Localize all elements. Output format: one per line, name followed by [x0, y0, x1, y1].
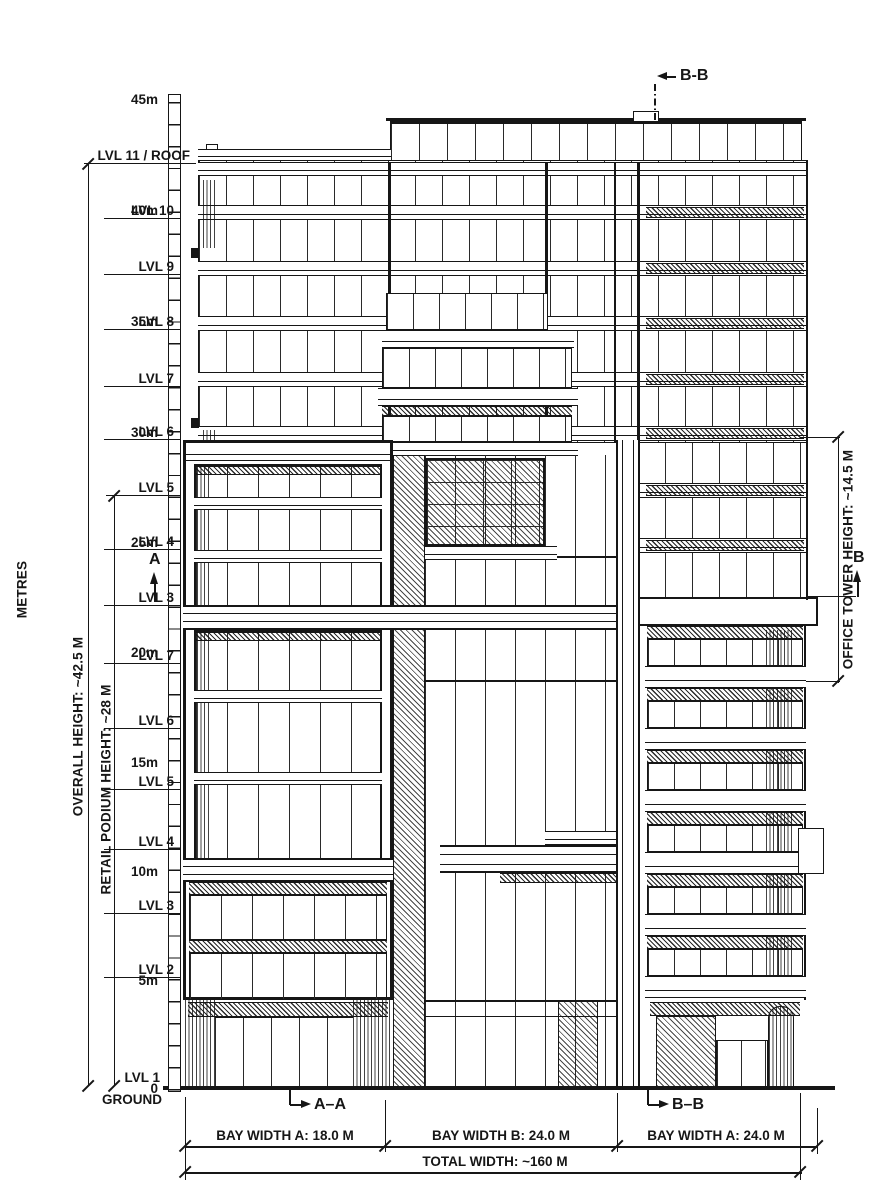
ground-line: [163, 1086, 835, 1090]
facade-hatch-lintel: [646, 428, 804, 439]
facade-centre-window-row: [382, 416, 572, 442]
facade-hatch-lintel: [196, 466, 380, 475]
bay-width-label: BAY WIDTH B: 24.0 M: [391, 1128, 611, 1143]
facade-hatched-core: [393, 455, 425, 1088]
section-arrow-right-icon: [659, 1100, 669, 1108]
section-arrow-stem: [857, 582, 859, 597]
facade-centre-band: [380, 442, 578, 456]
overall-height-label: OVERALL HEIGHT: ~42.5 M: [71, 617, 86, 837]
facade-storefront-hatched-panel: [656, 1016, 716, 1087]
facade-centre-window-row: [382, 348, 572, 388]
facade-spandrel: [645, 852, 806, 874]
facade-atrium-grid-h: [427, 460, 543, 544]
total-width-dim-line: [185, 1172, 802, 1174]
facade-left-parapet: [198, 149, 391, 161]
section-arrow-stem: [666, 76, 676, 78]
section-arrow-stem: [154, 584, 156, 602]
facade-right-cornice: [638, 597, 818, 626]
facade-centre-window-row: [386, 293, 548, 330]
bay-width-dim-line: [185, 1146, 817, 1148]
level-label: LVL 3: [104, 588, 180, 606]
facade-hatch-lintel: [646, 540, 804, 551]
facade-storefront-column: [185, 1000, 215, 1087]
facade-atrium-hatch-panel: [425, 458, 545, 546]
facade-centre-step-band: [545, 831, 617, 845]
section-arrow-up-icon: [150, 572, 158, 584]
level-label: LVL 7: [104, 369, 180, 387]
facade-left-podium-glazing: [194, 464, 382, 607]
level-label: LVL 8: [104, 312, 180, 330]
facade-column-louvre: [197, 467, 209, 605]
level-label: LVL 10: [104, 201, 180, 219]
section-arrow-stem: [290, 1104, 301, 1106]
facade-hatch-lintel: [647, 626, 803, 639]
facade-spandrel: [645, 790, 806, 812]
facade-right-edge-line: [806, 160, 808, 600]
level-label: LVL 4: [104, 832, 180, 850]
facade-atrium-sill-band: [425, 546, 557, 560]
facade-heavy-mullion: [637, 162, 640, 443]
section-arrow-right-icon: [301, 1100, 311, 1108]
scale-unit-label: METRES: [15, 538, 30, 642]
facade-storefront-column: [353, 1000, 391, 1087]
bay-width-label: BAY WIDTH A: 24.0 M: [606, 1128, 826, 1143]
facade-edge-louvre: [203, 180, 217, 248]
level-label: GROUND: [98, 1090, 168, 1108]
facade-window-row: [189, 895, 387, 940]
level-label: LVL 2: [104, 960, 180, 978]
section-line-bottom-b: [647, 1089, 649, 1105]
facade-rail-band: [194, 550, 382, 563]
facade-left-podium-top-band: [186, 443, 390, 461]
facade-slab-marker: [191, 418, 199, 428]
facade-pier-line: [633, 440, 634, 1088]
facade-storefront-glazing: [215, 1017, 353, 1087]
facade-centre-spandrel: [440, 845, 617, 873]
facade-round-column: [768, 1006, 794, 1087]
section-arrow-up-icon: [853, 570, 861, 582]
facade-hatch-lintel: [647, 688, 803, 701]
section-arrow-stem: [648, 1104, 659, 1106]
facade-hatch-lintel: [647, 812, 803, 825]
facade-hatch-lintel: [500, 873, 617, 883]
facade-spandrel: [645, 666, 806, 688]
facade-hatch-lintel: [646, 207, 804, 218]
facade-curtain-rail: [425, 680, 617, 682]
facade-hatch-lintel: [646, 374, 804, 385]
level-label: LVL 4: [104, 532, 180, 550]
facade-spandrel-band: [198, 162, 808, 176]
facade-hatch-lintel: [646, 263, 804, 274]
level-label: LVL 6: [104, 711, 180, 729]
facade-window-row: [647, 825, 803, 852]
facade-storefront-hatched-pier: [558, 1000, 598, 1088]
facade-storefront-glazing: [716, 1040, 768, 1087]
level-label: LVL 7: [104, 646, 180, 664]
facade-spandrel: [645, 976, 806, 998]
elevation-drawing: METRES 45m 40m 35m 30m 25m 20m 15m 10m 5…: [0, 0, 896, 1200]
facade-tall-pier: [616, 440, 640, 1088]
level-label: LVL 11 / ROOF: [84, 146, 196, 164]
facade-window-row: [647, 887, 803, 914]
facade-hatch-lintel: [189, 882, 387, 895]
section-label-elev-a: A: [149, 552, 161, 568]
section-leader-line: [808, 596, 856, 597]
level-label: LVL 5: [104, 772, 180, 790]
facade-window-row: [647, 949, 803, 976]
facade-hatch-lintel: [647, 750, 803, 763]
facade-hatch-lintel: [646, 318, 804, 329]
level-label: LVL 9: [104, 257, 180, 275]
scale-tick-label: 45m: [106, 93, 158, 107]
section-line-bottom-a: [289, 1089, 291, 1105]
section-label-bottom-b: B–B: [672, 1097, 704, 1113]
facade-hatch-lintel: [382, 406, 572, 416]
facade-right-edge-notch: [798, 828, 824, 874]
section-label-elev-b: B: [853, 550, 865, 566]
facade-hatch-lintel: [196, 632, 380, 641]
facade-rail-band: [194, 497, 382, 510]
facade-rail-band: [194, 690, 382, 703]
podium-height-label: RETAIL PODIUM HEIGHT: ~28 M: [99, 675, 114, 905]
facade-hatch-lintel: [646, 485, 804, 496]
overall-height-dim-line: [88, 164, 89, 1086]
podium-height-dim-line: [114, 496, 115, 1086]
facade-left-podium-glazing: [194, 630, 382, 860]
office-tower-dim-line: [838, 437, 839, 683]
level-label: LVL 6: [104, 422, 180, 440]
section-line-top: [654, 84, 656, 122]
facade-podium-mid-band: [183, 605, 616, 630]
facade-rail-band: [194, 772, 382, 785]
total-width-label: TOTAL WIDTH: ~160 M: [385, 1154, 605, 1169]
facade-roof-block: [390, 121, 802, 161]
facade-pier-line: [622, 440, 623, 1088]
facade-hatch-lintel: [647, 874, 803, 887]
section-label-bottom-a: A–A: [314, 1097, 346, 1113]
facade-centre-band: [378, 388, 578, 406]
facade-spandrel: [645, 728, 806, 750]
facade-hatch-lintel: [647, 936, 803, 949]
facade-window-row: [189, 953, 387, 1000]
facade-heavy-mullion: [614, 162, 616, 443]
section-label-top: B-B: [680, 68, 708, 84]
facade-centre-band: [382, 330, 574, 348]
bay-width-label: BAY WIDTH A: 18.0 M: [175, 1128, 395, 1143]
facade-column-louvre: [197, 633, 209, 858]
facade-parapet-step: [206, 144, 218, 150]
facade-tower-right-extension: [638, 443, 808, 600]
facade-window-row: [647, 639, 803, 666]
facade-window-row: [647, 763, 803, 790]
facade-window-row: [647, 701, 803, 728]
facade-hatch-lintel: [189, 940, 387, 953]
level-label: LVL 3: [104, 896, 180, 914]
facade-spandrel: [645, 914, 806, 936]
facade-slab-marker: [191, 248, 199, 258]
facade-podium-band: [183, 858, 393, 882]
